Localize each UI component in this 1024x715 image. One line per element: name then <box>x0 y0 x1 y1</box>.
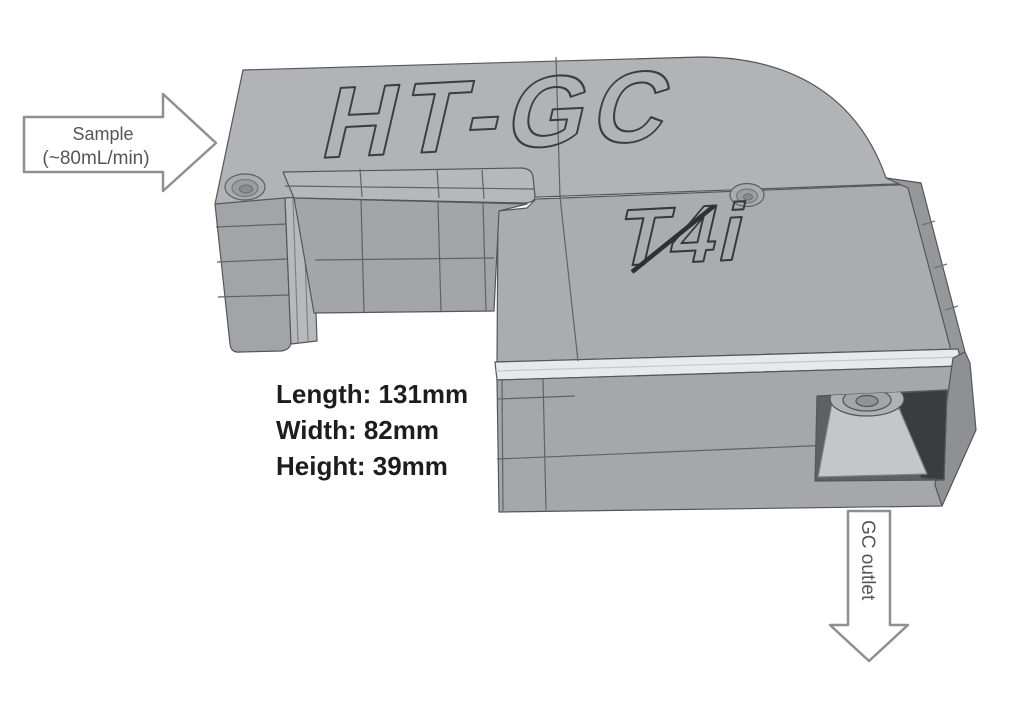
dimension-annotations: Length: 131mm Width: 82mm Height: 39mm <box>276 379 468 481</box>
countersunk-hole-left <box>225 174 265 200</box>
dimension-width: Width: 82mm <box>276 415 439 445</box>
device-name-engraving: HT-GC <box>313 48 690 180</box>
dimension-height: Height: 39mm <box>276 451 448 481</box>
outlet-opening <box>815 382 947 481</box>
device-grooved-block-front <box>294 198 527 313</box>
dimension-length: Length: 131mm <box>276 379 468 409</box>
gc-outlet-arrow-label: GC outlet <box>857 520 878 601</box>
figure-canvas: HT-GC T4i Sample (~80mL/min) GC outlet L… <box>0 0 1024 715</box>
device-left-block <box>215 198 291 352</box>
sample-arrow-label-line1: Sample <box>72 124 133 144</box>
sample-arrow-label-line2: (~80mL/min) <box>42 148 149 169</box>
